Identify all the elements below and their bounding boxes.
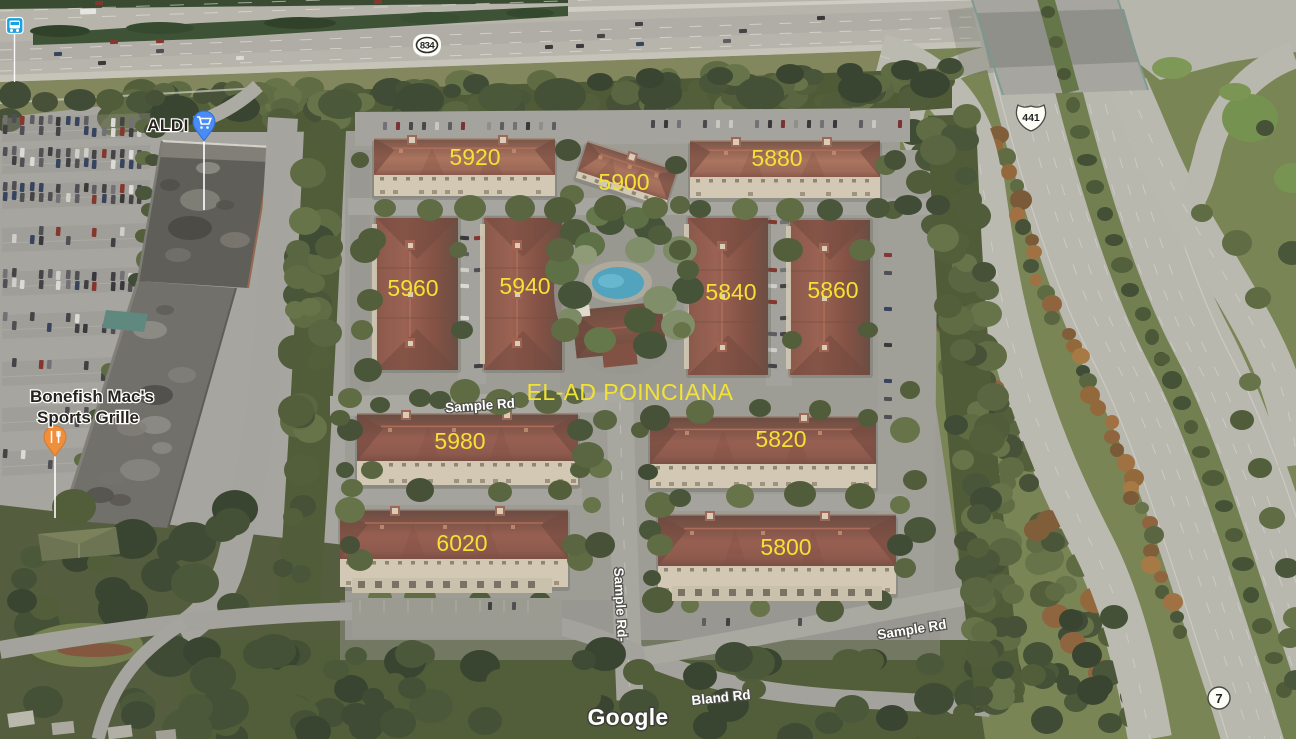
svg-text:5940: 5940 [499,273,550,299]
svg-text:5900: 5900 [598,169,649,195]
svg-text:441: 441 [1022,112,1040,124]
svg-text:5960: 5960 [387,275,438,301]
svg-text:834: 834 [420,41,436,52]
svg-text:6020: 6020 [436,530,487,556]
svg-text:Bonefish Mac's: Bonefish Mac's [30,387,154,406]
svg-text:ALDI: ALDI [147,116,189,135]
svg-text:5840: 5840 [705,279,756,305]
svg-text:5860: 5860 [807,277,858,303]
svg-text:5920: 5920 [449,144,500,170]
svg-text:5820: 5820 [755,426,806,452]
svg-text:5880: 5880 [751,145,802,171]
svg-text:Sports Grille: Sports Grille [37,408,139,427]
svg-text:EL-AD POINCIANA: EL-AD POINCIANA [527,379,734,405]
svg-text:Google: Google [587,704,668,730]
svg-text:5980: 5980 [434,428,485,454]
svg-text:7: 7 [1215,691,1222,706]
svg-text:5800: 5800 [760,534,811,560]
